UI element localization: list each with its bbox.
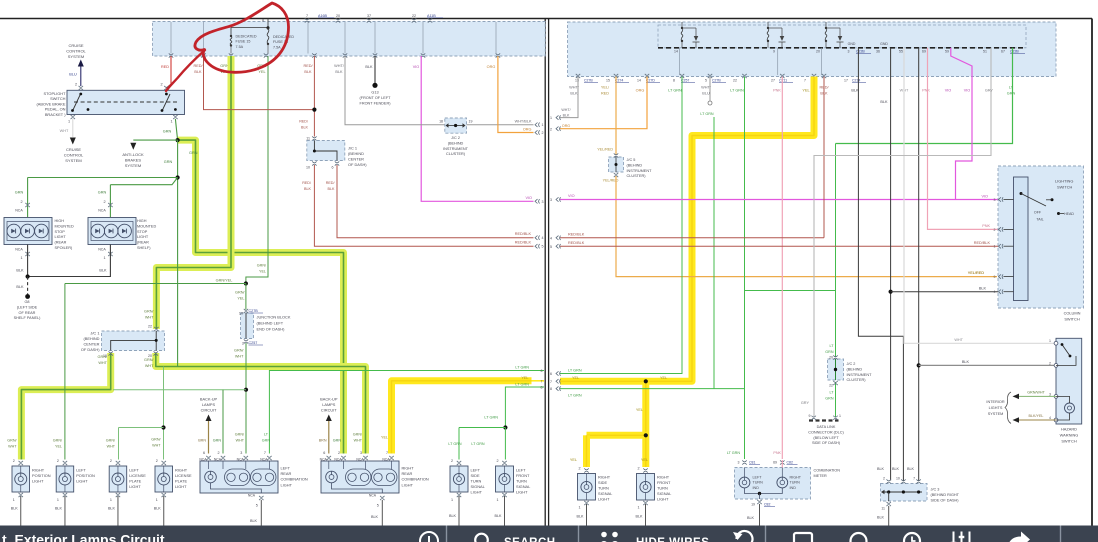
svg-text:BLK: BLK	[495, 514, 503, 518]
svg-text:BLK: BLK	[99, 269, 107, 273]
svg-text:9: 9	[994, 275, 996, 279]
svg-text:2: 2	[1049, 361, 1051, 365]
svg-text:GRN/: GRN/	[144, 358, 154, 362]
svg-text:55: 55	[899, 50, 903, 54]
svg-text:TURN: TURN	[790, 481, 801, 485]
svg-text:NCA: NCA	[15, 209, 23, 213]
svg-text:PNK: PNK	[773, 89, 781, 93]
svg-text:STOP: STOP	[137, 230, 148, 234]
svg-text:PNK: PNK	[922, 89, 930, 93]
svg-text:RED/BLK: RED/BLK	[515, 241, 532, 245]
svg-text:LIGHT: LIGHT	[76, 479, 88, 484]
svg-text:CRUISE: CRUISE	[66, 147, 81, 152]
svg-text:YEL: YEL	[55, 445, 62, 449]
svg-text:YEL: YEL	[802, 89, 809, 93]
svg-text:OF REAR: OF REAR	[19, 311, 36, 315]
svg-text:RIGHT: RIGHT	[598, 475, 611, 480]
svg-text:RED/: RED/	[193, 64, 203, 68]
svg-text:69: 69	[773, 461, 777, 465]
svg-text:RIGHT: RIGHT	[657, 475, 670, 480]
svg-text:GRN/: GRN/	[235, 291, 245, 295]
svg-text:BRAKES: BRAKES	[125, 158, 142, 163]
svg-text:YEL: YEL	[521, 376, 528, 380]
svg-text:C22B: C22B	[856, 50, 865, 54]
svg-text:LEFT: LEFT	[129, 468, 139, 473]
svg-text:2: 2	[542, 131, 544, 135]
svg-text:POSITION: POSITION	[76, 473, 95, 478]
svg-text:LT GRN: LT GRN	[471, 442, 485, 446]
svg-text:(BEHIND: (BEHIND	[448, 141, 464, 145]
svg-text:LIGHT: LIGHT	[281, 482, 293, 487]
svg-text:22: 22	[733, 79, 737, 83]
svg-text:GRN/: GRN/	[353, 433, 363, 437]
svg-text:GRN: GRN	[262, 439, 271, 443]
svg-text:(BEHIND RIGHT: (BEHIND RIGHT	[931, 493, 960, 497]
svg-text:YEL: YEL	[381, 436, 388, 440]
svg-text:COMBINATION: COMBINATION	[814, 469, 841, 473]
svg-text:15: 15	[606, 79, 610, 83]
svg-text:GRN: GRN	[1007, 92, 1016, 96]
svg-text:2: 2	[578, 467, 580, 471]
svg-text:CLUSTER): CLUSTER)	[627, 174, 647, 178]
svg-text:SYSTEM: SYSTEM	[65, 158, 81, 163]
svg-text:27: 27	[771, 79, 775, 83]
svg-text:DEDICATED: DEDICATED	[236, 35, 257, 39]
svg-text:7: 7	[913, 477, 915, 481]
svg-text:BLK: BLK	[747, 516, 755, 520]
svg-text:BLK: BLK	[570, 92, 578, 96]
svg-text:RED/BLK: RED/BLK	[974, 241, 991, 245]
svg-text:GRN: GRN	[98, 191, 107, 195]
svg-text:GRN: GRN	[333, 439, 342, 443]
svg-text:LIGHT: LIGHT	[55, 235, 67, 239]
svg-text:SYSTEM: SYSTEM	[125, 163, 141, 168]
svg-text:2: 2	[156, 459, 158, 463]
svg-text:YEL: YEL	[660, 376, 667, 380]
svg-text:J/C 1: J/C 1	[90, 331, 99, 336]
svg-text:RED/: RED/	[299, 120, 309, 124]
svg-text:WHT: WHT	[236, 439, 245, 443]
svg-text:2: 2	[496, 459, 498, 463]
svg-text:2: 2	[637, 467, 639, 471]
svg-text:TURN: TURN	[516, 479, 527, 484]
svg-text:RED: RED	[161, 65, 169, 69]
svg-text:BLK: BLK	[108, 507, 116, 511]
svg-text:C22B: C22B	[1010, 50, 1019, 54]
svg-text:1: 1	[170, 120, 172, 124]
svg-text:J/C 2: J/C 2	[847, 362, 856, 366]
svg-text:1: 1	[839, 414, 841, 418]
svg-text:RED: RED	[601, 92, 609, 96]
svg-text:OFF: OFF	[1034, 211, 1042, 215]
svg-text:22: 22	[829, 384, 833, 388]
svg-text:WHT: WHT	[145, 316, 154, 320]
svg-text:G13: G13	[371, 91, 378, 95]
svg-text:VIO: VIO	[964, 89, 971, 93]
svg-text:GRN: GRN	[825, 350, 834, 354]
svg-text:C82: C82	[787, 461, 793, 465]
svg-text:BLK/YEL: BLK/YEL	[1029, 414, 1044, 418]
svg-text:69: 69	[922, 50, 926, 54]
svg-text:59: 59	[945, 50, 949, 54]
svg-text:LIGHT: LIGHT	[137, 235, 149, 239]
svg-text:2: 2	[103, 200, 105, 204]
svg-text:OF DASH): OF DASH)	[348, 162, 367, 167]
svg-text:5: 5	[256, 504, 258, 508]
svg-text:RED/: RED/	[303, 64, 313, 68]
svg-text:19: 19	[469, 120, 473, 124]
svg-text:YEL/RED: YEL/RED	[597, 148, 613, 152]
svg-text:YEL: YEL	[636, 408, 643, 412]
svg-text:LIGHT: LIGHT	[129, 484, 141, 489]
svg-text:(BEHIND: (BEHIND	[84, 336, 100, 341]
svg-text:J/C 5: J/C 5	[627, 158, 636, 162]
svg-text:CIRCUIT: CIRCUIT	[321, 408, 337, 413]
svg-text:C211: C211	[779, 79, 787, 83]
svg-text:TAIL: TAIL	[1036, 218, 1043, 222]
svg-text:WHT/: WHT/	[334, 64, 345, 68]
svg-text:COMBINATION: COMBINATION	[402, 477, 429, 482]
svg-text:GRN/: GRN/	[257, 264, 267, 268]
svg-text:3: 3	[542, 200, 544, 204]
svg-text:LT GRN: LT GRN	[568, 393, 582, 397]
svg-text:PLATE: PLATE	[129, 479, 141, 484]
svg-text:7: 7	[541, 379, 543, 383]
svg-text:LEFT: LEFT	[516, 468, 526, 473]
svg-text:ORG: ORG	[636, 89, 645, 93]
svg-text:9: 9	[809, 414, 811, 418]
svg-text:WHT/BLK: WHT/BLK	[515, 119, 532, 123]
svg-text:VIO: VIO	[981, 195, 988, 199]
svg-text:4: 4	[550, 236, 552, 240]
svg-text:G8: G8	[24, 300, 29, 304]
svg-text:IND: IND	[753, 486, 760, 490]
svg-text:LICENSE: LICENSE	[175, 473, 192, 478]
svg-text:CONTROL: CONTROL	[66, 49, 86, 54]
svg-text:WHT: WHT	[954, 338, 963, 342]
svg-text:SIDE: SIDE	[471, 473, 480, 478]
svg-text:RED/BLK: RED/BLK	[568, 232, 585, 236]
svg-text:1: 1	[68, 120, 70, 124]
svg-text:SYSTEM: SYSTEM	[988, 412, 1004, 416]
svg-text:C27B: C27B	[249, 309, 259, 313]
svg-text:INTERIOR: INTERIOR	[986, 400, 1004, 404]
svg-text:GRN: GRN	[825, 397, 834, 401]
svg-text:BRN: BRN	[319, 439, 327, 443]
svg-text:BLK: BLK	[304, 70, 312, 74]
svg-text:SHELF PANEL): SHELF PANEL)	[14, 316, 41, 320]
svg-text:GRN/: GRN/	[53, 439, 63, 443]
svg-text:CENTER: CENTER	[348, 157, 364, 162]
svg-text:A11B: A11B	[427, 14, 436, 18]
svg-text:YEL: YEL	[258, 70, 265, 74]
svg-text:GRN/: GRN/	[235, 433, 245, 437]
svg-text:POSITION: POSITION	[32, 473, 51, 478]
svg-text:BLK: BLK	[371, 515, 379, 519]
svg-text:YEL: YEL	[641, 458, 648, 462]
svg-text:2: 2	[57, 459, 59, 463]
svg-text:C27B: C27B	[712, 79, 721, 83]
svg-text:10: 10	[103, 354, 107, 358]
svg-text:BLK: BLK	[16, 285, 24, 289]
svg-text:1: 1	[1049, 339, 1051, 343]
svg-text:(BEHIND: (BEHIND	[348, 151, 364, 156]
svg-text:YEL/RED: YEL/RED	[968, 271, 985, 275]
svg-text:ORG: ORG	[487, 65, 496, 69]
svg-text:GRN/: GRN/	[144, 310, 154, 314]
svg-text:BLK: BLK	[877, 467, 885, 471]
svg-text:REAR: REAR	[281, 471, 292, 476]
svg-text:BLK: BLK	[335, 70, 343, 74]
svg-text:1: 1	[103, 256, 105, 260]
svg-text:PNK: PNK	[773, 451, 781, 455]
svg-text:7: 7	[264, 451, 266, 455]
svg-text:HEAD: HEAD	[1064, 212, 1074, 216]
svg-text:NCA: NCA	[260, 457, 268, 461]
svg-text:2: 2	[242, 342, 244, 346]
svg-text:20: 20	[336, 14, 340, 18]
svg-text:6: 6	[332, 166, 334, 170]
svg-text:LEFT: LEFT	[753, 476, 763, 480]
svg-text:6: 6	[541, 369, 543, 373]
svg-text:COLUMN: COLUMN	[1064, 311, 1081, 316]
svg-text:GRN/: GRN/	[106, 439, 116, 443]
svg-text:3: 3	[360, 451, 362, 455]
svg-text:LAMPS: LAMPS	[202, 402, 216, 407]
svg-text:1: 1	[20, 256, 22, 260]
svg-text:WHT: WHT	[235, 355, 244, 359]
svg-text:RED/BLK: RED/BLK	[568, 241, 585, 245]
svg-text:SIGNAL: SIGNAL	[516, 484, 531, 489]
svg-text:SIDE OF DASH): SIDE OF DASH)	[812, 441, 841, 445]
svg-text:CONTROL: CONTROL	[64, 153, 84, 158]
svg-text:10: 10	[306, 166, 310, 170]
svg-text:IND: IND	[790, 486, 797, 490]
svg-text:CLUSTER): CLUSTER)	[446, 152, 466, 156]
svg-text:GND: GND	[880, 42, 888, 46]
svg-text:HIGH: HIGH	[137, 219, 147, 223]
svg-text:INSTRUMENT: INSTRUMENT	[443, 147, 469, 151]
svg-text:WHT: WHT	[354, 439, 363, 443]
svg-text:C214: C214	[852, 79, 860, 83]
svg-text:BLK: BLK	[636, 515, 644, 519]
svg-text:DATA LINK: DATA LINK	[817, 425, 836, 429]
svg-text:LT GRN: LT GRN	[730, 89, 744, 93]
svg-text:REAR: REAR	[402, 471, 413, 476]
svg-text:LIGHTS: LIGHTS	[989, 406, 1003, 410]
svg-text:(BEHIND: (BEHIND	[847, 367, 863, 371]
svg-text:18: 18	[439, 120, 443, 124]
svg-text:LIGHT: LIGHT	[598, 497, 610, 502]
svg-text:GRN/YEL: GRN/YEL	[216, 278, 233, 282]
svg-text:BLK: BLK	[194, 70, 202, 74]
svg-text:6: 6	[550, 372, 552, 376]
svg-text:PNK: PNK	[982, 224, 990, 228]
svg-text:ORG: ORG	[523, 128, 532, 132]
svg-text:BLK: BLK	[154, 507, 162, 511]
svg-text:NCA: NCA	[237, 457, 245, 461]
svg-text:INSTRUMENT: INSTRUMENT	[627, 169, 653, 173]
svg-text:YEL: YEL	[570, 458, 577, 462]
svg-text:5: 5	[542, 245, 544, 249]
svg-text:LIGHTING: LIGHTING	[1055, 179, 1073, 184]
svg-text:SEARCH: SEARCH	[504, 537, 556, 542]
svg-text:5: 5	[705, 79, 707, 83]
svg-text:FRONT: FRONT	[516, 473, 530, 478]
svg-text:NCA: NCA	[98, 209, 106, 213]
svg-text:BACK-UP: BACK-UP	[320, 397, 338, 402]
svg-text:GND: GND	[848, 42, 856, 46]
svg-text:LICENSE: LICENSE	[129, 473, 146, 478]
svg-text:C82: C82	[764, 503, 770, 507]
svg-text:WHT: WHT	[8, 445, 17, 449]
svg-text:CLUSTER): CLUSTER)	[847, 378, 867, 382]
svg-text:36: 36	[876, 50, 880, 54]
svg-text:(BEHIND LEFT: (BEHIND LEFT	[257, 321, 284, 326]
svg-text:CRUISE: CRUISE	[68, 43, 83, 48]
svg-text:3: 3	[550, 198, 552, 202]
svg-text:BLK: BLK	[11, 507, 19, 511]
svg-text:1: 1	[13, 498, 15, 502]
svg-text:1: 1	[156, 498, 158, 502]
svg-text:SIGNAL: SIGNAL	[598, 491, 613, 496]
svg-text:BLK: BLK	[880, 100, 888, 104]
svg-text:END OF DASH): END OF DASH)	[257, 327, 286, 332]
svg-text:BLK: BLK	[449, 514, 457, 518]
svg-text:GRN/: GRN/	[151, 438, 161, 442]
svg-text:6: 6	[203, 451, 205, 455]
svg-text:9: 9	[773, 50, 775, 54]
svg-text:TURN: TURN	[753, 481, 764, 485]
svg-text:LT GRN: LT GRN	[515, 366, 529, 370]
svg-text:2: 2	[160, 83, 162, 87]
svg-text:BLK: BLK	[304, 187, 312, 191]
svg-text:YEL: YEL	[259, 270, 266, 274]
svg-text:6: 6	[323, 451, 325, 455]
svg-text:SWITCH: SWITCH	[1057, 185, 1073, 190]
svg-text:NCA: NCA	[15, 248, 23, 252]
svg-text:LT GRN: LT GRN	[668, 89, 682, 93]
svg-text:VIO: VIO	[525, 196, 532, 200]
svg-text:LT GRN: LT GRN	[700, 112, 714, 116]
svg-text:BLK: BLK	[328, 187, 336, 191]
svg-text:BLK: BLK	[301, 126, 309, 130]
svg-text:BLK: BLK	[962, 360, 970, 364]
svg-text:NCA: NCA	[356, 457, 364, 461]
svg-text:LEFT: LEFT	[471, 468, 481, 473]
svg-text:14: 14	[674, 50, 678, 54]
svg-text:SWITCH: SWITCH	[1061, 439, 1077, 444]
svg-text:1: 1	[994, 245, 996, 249]
svg-text:JUNCTION BLOCK: JUNCTION BLOCK	[257, 315, 291, 320]
svg-text:J/C 3: J/C 3	[931, 488, 940, 492]
svg-text:RIGHT: RIGHT	[790, 476, 802, 480]
svg-text:PLATE: PLATE	[175, 479, 187, 484]
svg-text:BLK: BLK	[16, 269, 24, 273]
svg-text:2: 2	[338, 451, 340, 455]
svg-text:BLK: BLK	[577, 515, 585, 519]
svg-text:7: 7	[386, 451, 388, 455]
svg-text:20: 20	[816, 50, 820, 54]
svg-text:7: 7	[306, 14, 308, 18]
svg-text:14: 14	[637, 79, 641, 83]
svg-text:RIGHT: RIGHT	[32, 468, 45, 473]
svg-text:NCA: NCA	[199, 457, 207, 461]
svg-text:19: 19	[751, 503, 755, 507]
svg-text:LEFT: LEFT	[281, 466, 291, 471]
svg-text:LT GRN: LT GRN	[448, 442, 462, 446]
svg-text:RED/: RED/	[326, 181, 336, 185]
svg-text:RED/BLK: RED/BLK	[515, 232, 532, 236]
svg-text:LIGHT: LIGHT	[471, 490, 483, 495]
svg-text:TURN: TURN	[657, 486, 668, 491]
svg-text:LIGHT: LIGHT	[516, 490, 528, 495]
svg-text:(REAR: (REAR	[55, 241, 67, 245]
svg-text:GRN/WHT: GRN/WHT	[1027, 391, 1045, 395]
svg-text:4: 4	[994, 290, 996, 294]
svg-text:NCA: NCA	[248, 494, 256, 498]
svg-text:3: 3	[1049, 392, 1051, 396]
svg-text:1: 1	[496, 498, 498, 502]
svg-text:17: 17	[844, 79, 848, 83]
svg-text:8: 8	[541, 386, 543, 390]
svg-text:LT GRN: LT GRN	[484, 416, 498, 420]
svg-text:2: 2	[994, 228, 996, 232]
svg-text:GRY: GRY	[985, 89, 994, 93]
svg-text:3: 3	[240, 451, 242, 455]
svg-text:A16B: A16B	[318, 14, 328, 18]
svg-text:5: 5	[550, 245, 552, 249]
svg-text:RIGHT: RIGHT	[175, 468, 188, 473]
svg-text:TURN: TURN	[471, 479, 482, 484]
svg-text:22: 22	[148, 325, 152, 329]
svg-text:LT GRN: LT GRN	[515, 382, 529, 386]
svg-text:2: 2	[451, 459, 453, 463]
svg-text:LIGHT: LIGHT	[657, 497, 669, 502]
svg-text:7.5A: 7.5A	[236, 45, 244, 49]
svg-text:C81: C81	[749, 461, 755, 465]
svg-text:BLK: BLK	[250, 519, 258, 523]
svg-text:BLK: BLK	[55, 507, 63, 511]
svg-text:NCA: NCA	[369, 494, 377, 498]
svg-text:(REAR: (REAR	[137, 241, 149, 245]
svg-text:METER: METER	[814, 474, 828, 478]
svg-text:20: 20	[148, 354, 152, 358]
svg-text:10: 10	[896, 477, 900, 481]
svg-text:NCA: NCA	[214, 457, 222, 461]
svg-text:YEL: YEL	[237, 297, 244, 301]
svg-text:FRONT: FRONT	[657, 480, 671, 485]
svg-text:GRN/: GRN/	[234, 349, 244, 353]
svg-text:3: 3	[738, 461, 740, 465]
svg-text:5: 5	[377, 504, 379, 508]
svg-text:22: 22	[412, 14, 416, 18]
svg-text:LIGHT: LIGHT	[32, 479, 44, 484]
svg-text:7: 7	[804, 79, 806, 83]
svg-text:10: 10	[239, 312, 243, 316]
svg-text:1: 1	[542, 123, 544, 127]
svg-text:CIRCUIT: CIRCUIT	[201, 408, 217, 413]
svg-text:FRONT FENDER): FRONT FENDER)	[360, 101, 392, 105]
svg-text:SIDE: SIDE	[598, 480, 607, 485]
svg-text:BLU: BLU	[69, 73, 77, 77]
svg-text:RED/: RED/	[302, 181, 312, 185]
svg-text:SYSTEM: SYSTEM	[68, 54, 84, 59]
svg-text:GRN: GRN	[213, 439, 222, 443]
svg-text:11: 11	[881, 507, 885, 511]
svg-text:DEDICATED: DEDICATED	[273, 35, 294, 39]
svg-text:SIGNAL: SIGNAL	[471, 484, 486, 489]
